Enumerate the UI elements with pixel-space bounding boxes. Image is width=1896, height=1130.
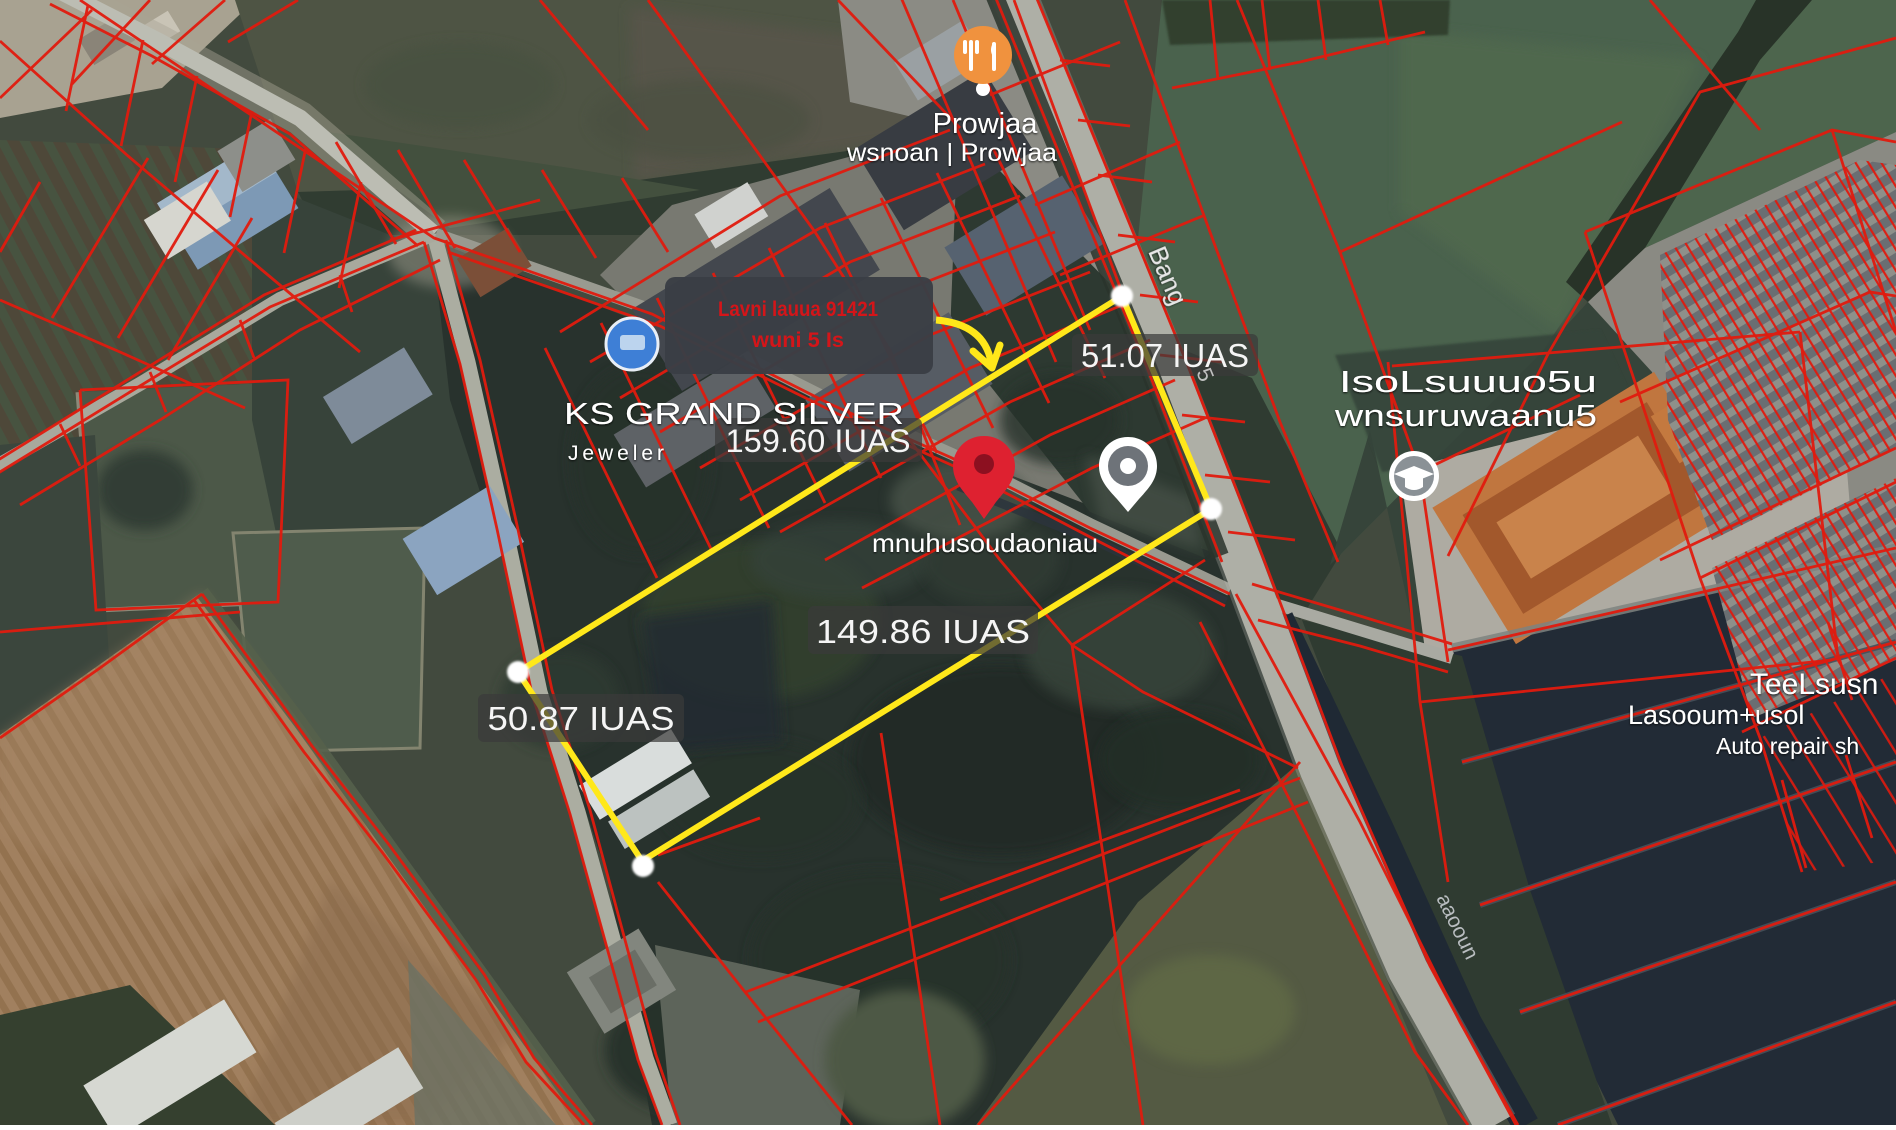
svg-text:wsnoan | Prowjaa: wsnoan | Prowjaa xyxy=(846,139,1057,167)
svg-text:wuni 5 Is: wuni 5 Is xyxy=(751,329,844,352)
svg-text:TeeLsusn: TeeLsusn xyxy=(1750,668,1878,701)
svg-text:Lavni lauua 91421: Lavni lauua 91421 xyxy=(718,298,878,321)
svg-text:149.86 IUAS: 149.86 IUAS xyxy=(816,613,1030,650)
svg-text:51.07 IUAS: 51.07 IUAS xyxy=(1081,337,1249,374)
svg-text:Auto repair sh: Auto repair sh xyxy=(1716,733,1859,759)
svg-text:wnsuruwaanu5: wnsuruwaanu5 xyxy=(1334,398,1597,433)
svg-text:mnuhusoudaoniau: mnuhusoudaoniau xyxy=(872,528,1098,558)
svg-text:Lasooum+usol: Lasooum+usol xyxy=(1628,700,1804,730)
svg-text:KS GRAND SILVER: KS GRAND SILVER xyxy=(564,396,904,431)
svg-text:50.87 IUAS: 50.87 IUAS xyxy=(488,700,675,737)
svg-text:IsoLsuuuo5u: IsoLsuuuo5u xyxy=(1339,364,1597,399)
svg-text:Prowjaa: Prowjaa xyxy=(933,108,1039,140)
